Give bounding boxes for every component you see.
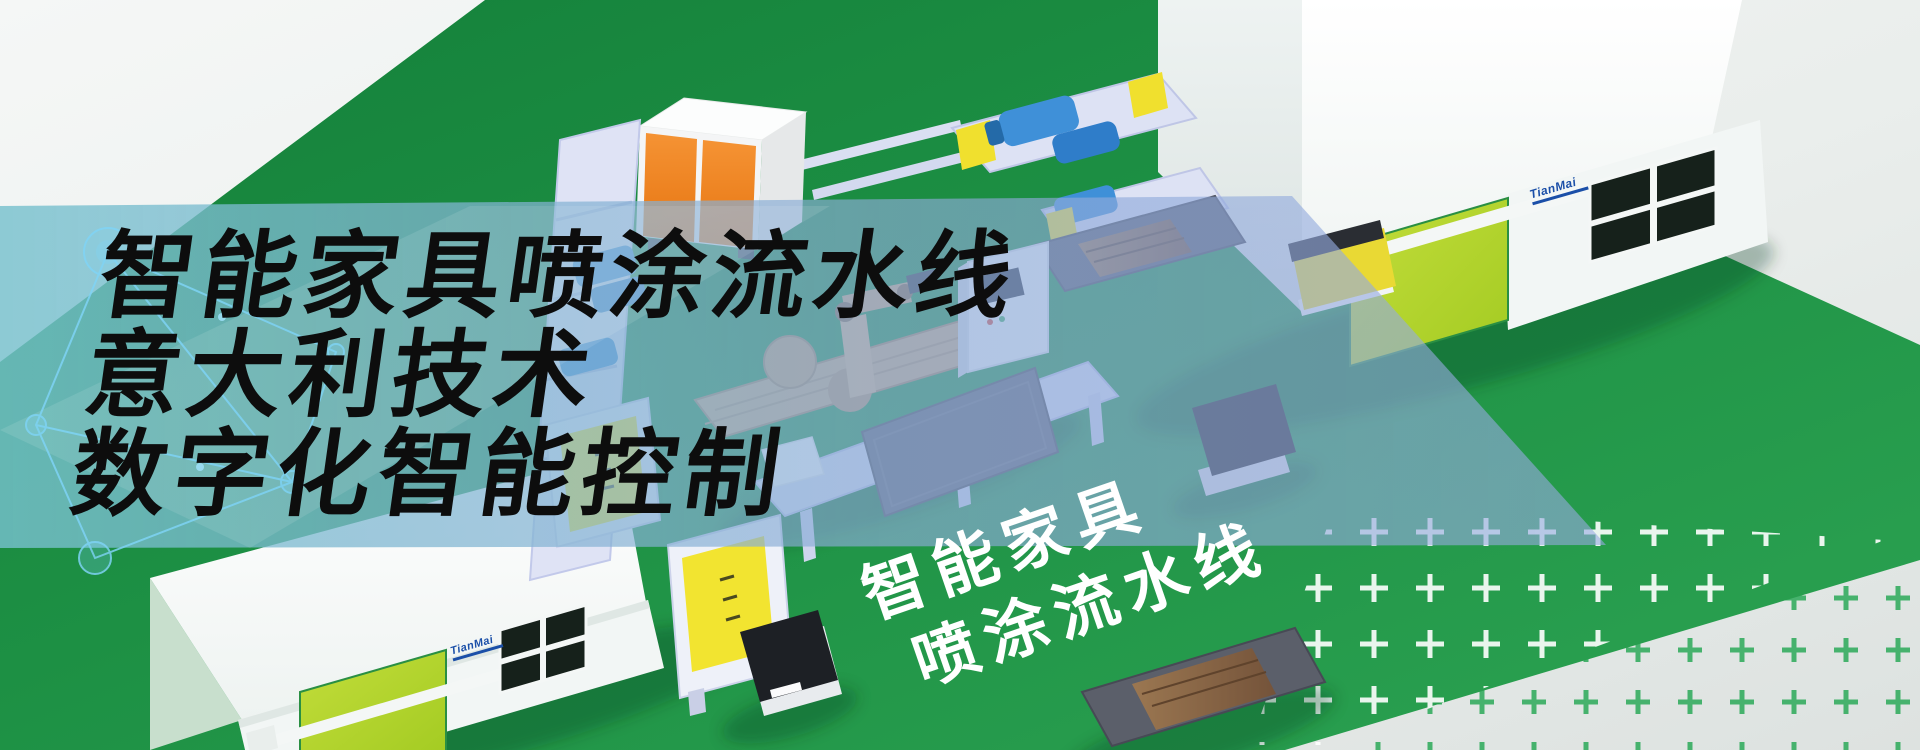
banner-stage: 智能家具喷涂流水线 意大利技术 数字化智能控制 智能家具 喷涂流水线 TianM…	[0, 0, 1920, 750]
headline-block: 智能家具喷涂流水线 意大利技术 数字化智能控制	[65, 228, 1025, 525]
headline-line-2: 意大利技术	[79, 327, 1011, 426]
headline-line-1: 智能家具喷涂流水线	[93, 228, 1025, 327]
headline-line-3: 数字化智能控制	[65, 426, 997, 525]
